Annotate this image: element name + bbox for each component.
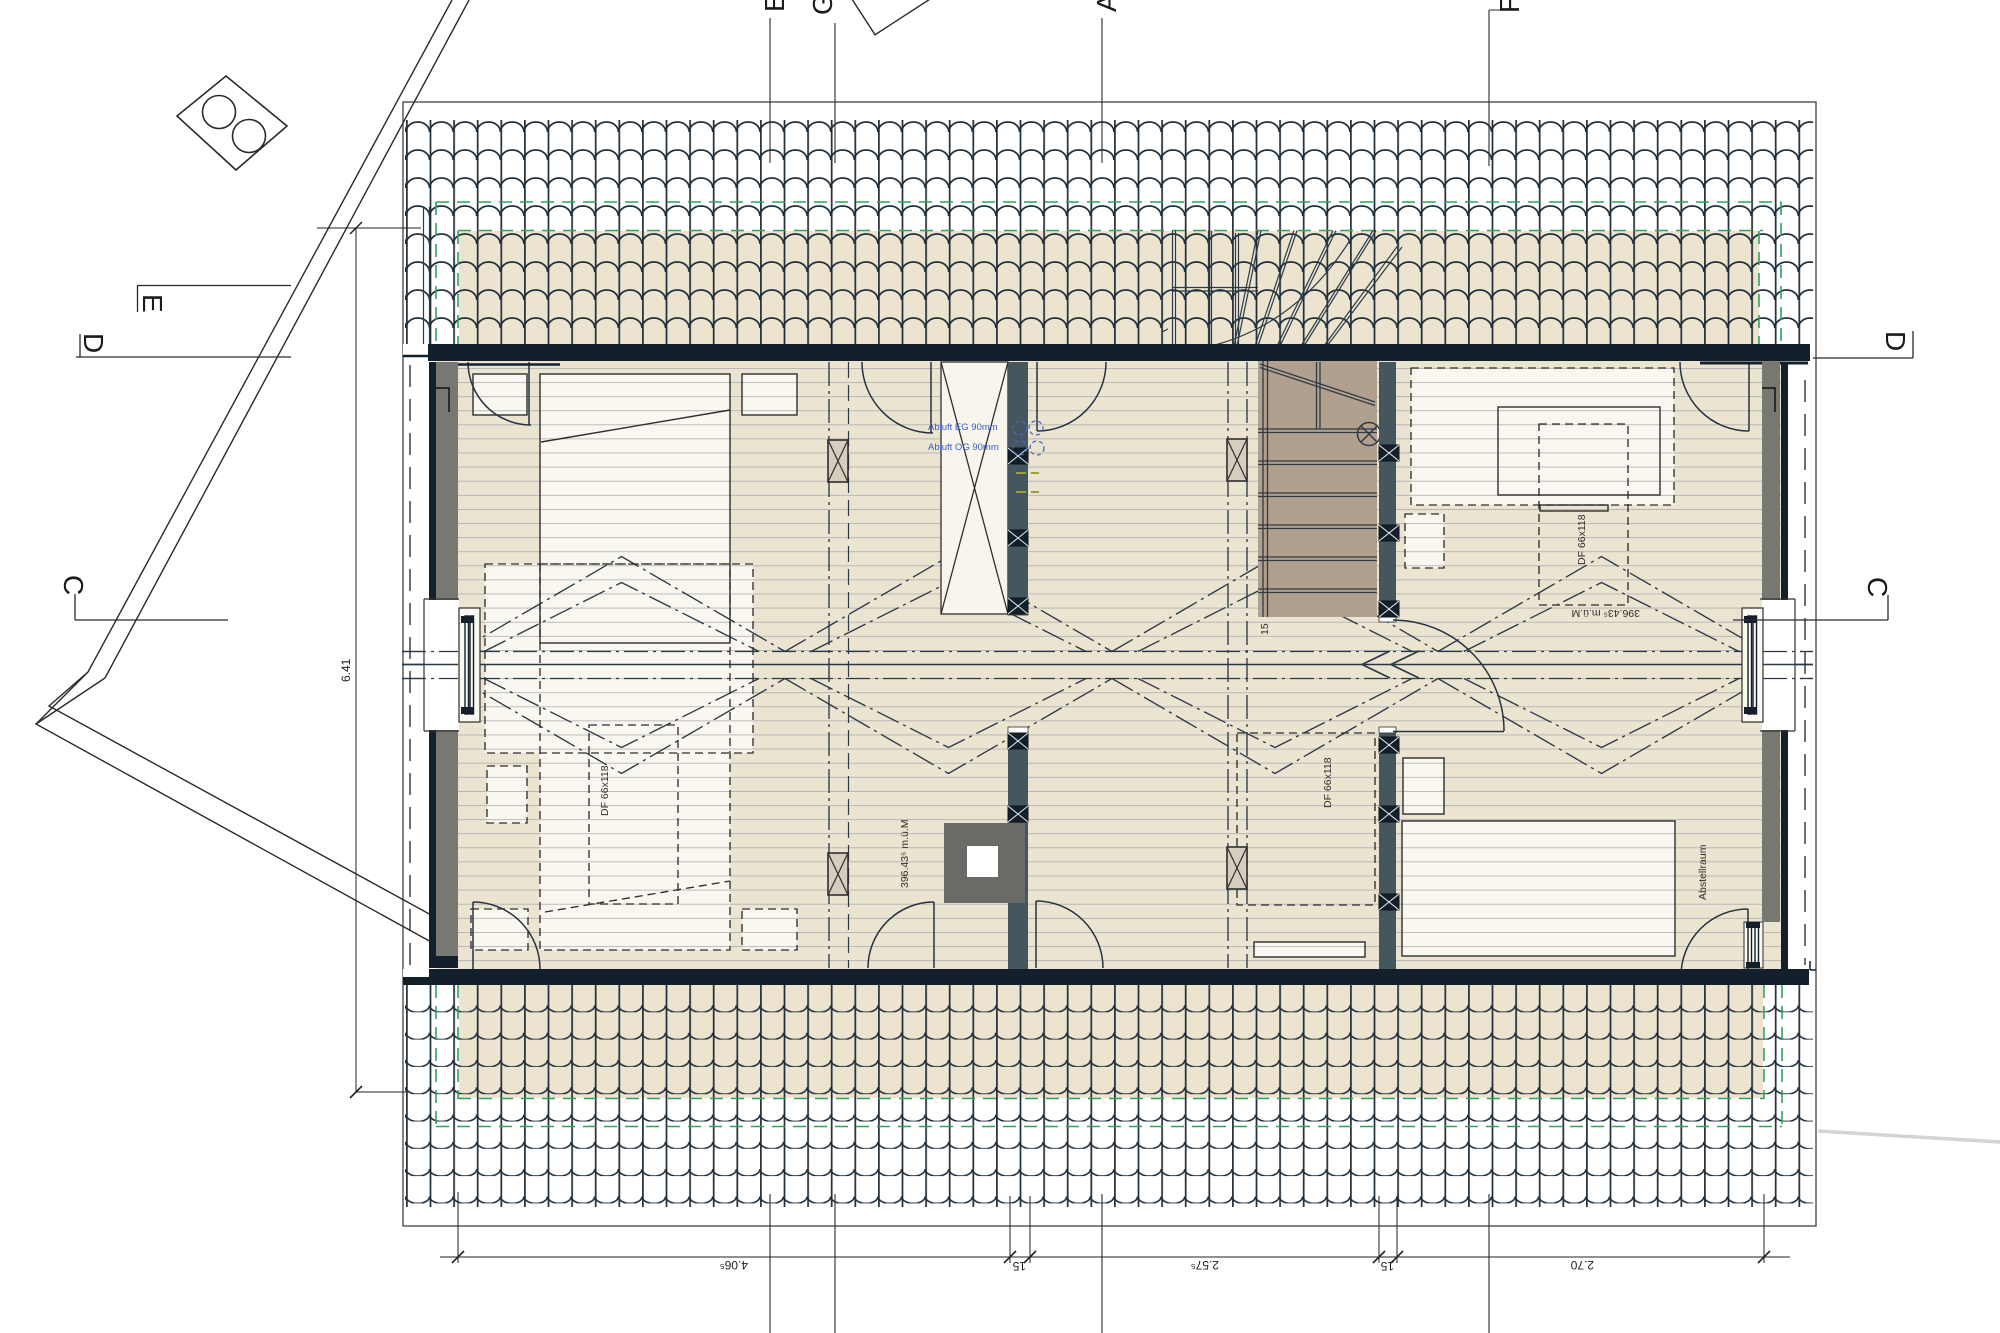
svg-text:15: 15 xyxy=(1380,1259,1394,1273)
svg-text:Abstellraum: Abstellraum xyxy=(1697,844,1709,900)
svg-text:D: D xyxy=(1880,331,1911,351)
svg-text:396.43⁵ m.ü.M: 396.43⁵ m.ü.M xyxy=(899,819,911,888)
svg-text:2.70: 2.70 xyxy=(1570,1258,1594,1272)
svg-text:A: A xyxy=(1091,0,1122,12)
svg-text:396.43⁵ m.ü.M: 396.43⁵ m.ü.M xyxy=(1571,607,1640,619)
svg-text:E: E xyxy=(759,0,790,12)
svg-text:4.06⁵: 4.06⁵ xyxy=(720,1258,748,1272)
svg-text:6.41: 6.41 xyxy=(339,658,353,682)
svg-text:C: C xyxy=(58,575,89,595)
svg-text:F: F xyxy=(1494,0,1525,13)
svg-text:G: G xyxy=(807,0,838,15)
svg-text:Abluft OG 90mm: Abluft OG 90mm xyxy=(928,442,999,453)
svg-text:DF 66x118: DF 66x118 xyxy=(1322,757,1334,808)
svg-text:E: E xyxy=(137,294,168,313)
svg-text:2.57⁵: 2.57⁵ xyxy=(1191,1258,1219,1272)
svg-text:Abluft EG 90mm: Abluft EG 90mm xyxy=(928,422,998,433)
svg-text:D: D xyxy=(78,333,109,353)
svg-text:C: C xyxy=(1862,577,1893,597)
svg-text:15: 15 xyxy=(1012,1259,1026,1273)
svg-text:DF 66x118: DF 66x118 xyxy=(599,765,611,816)
svg-text:DF 66x118: DF 66x118 xyxy=(1576,514,1588,565)
svg-text:15: 15 xyxy=(1259,623,1271,635)
